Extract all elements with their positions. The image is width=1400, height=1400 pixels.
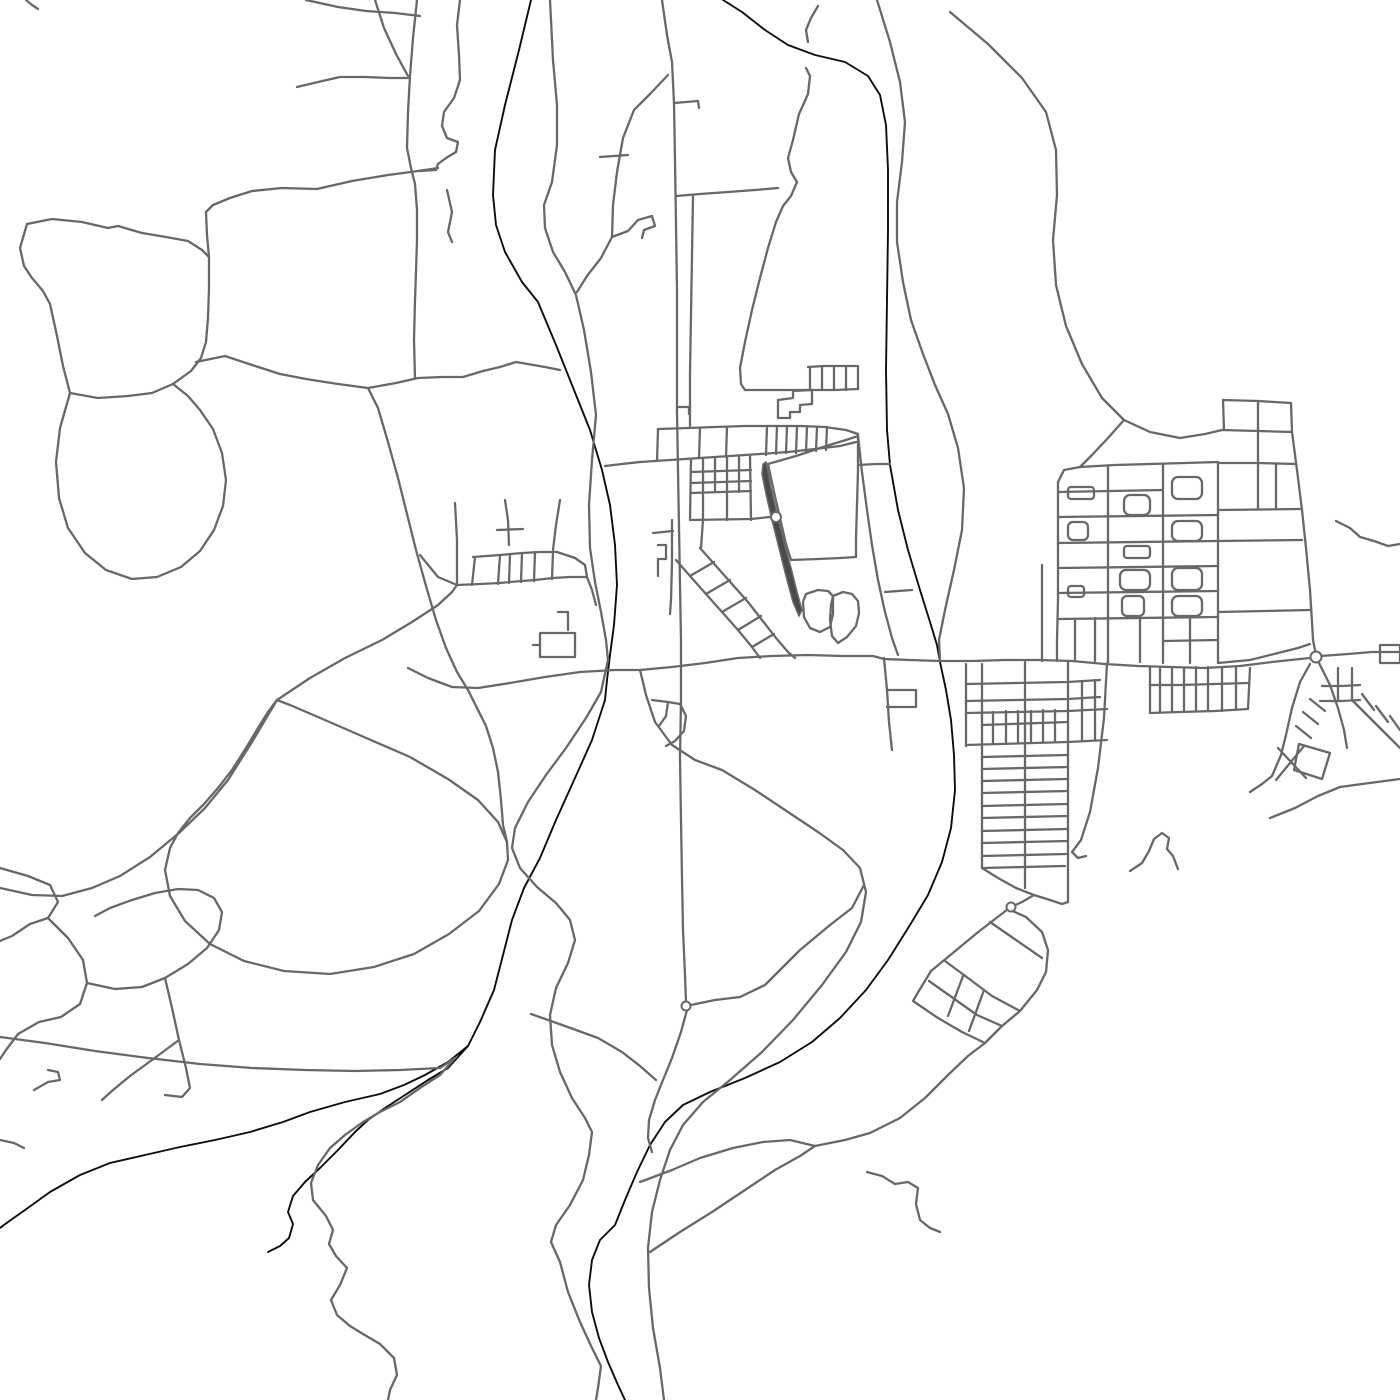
road [497, 529, 523, 530]
roundabout-junction [682, 1002, 691, 1011]
road [1057, 482, 1058, 661]
road [521, 553, 522, 582]
road [552, 552, 553, 579]
road-map-canvas [0, 0, 1400, 1400]
road [1218, 540, 1302, 541]
road [699, 428, 700, 458]
road [858, 464, 890, 465]
roundabout-junction [771, 512, 781, 522]
road [766, 426, 767, 455]
road [508, 520, 509, 545]
map-background [0, 0, 1400, 1400]
roundabout-junction [1007, 903, 1016, 912]
road [806, 426, 807, 452]
road [690, 459, 691, 520]
road [776, 426, 777, 454]
road [657, 429, 658, 461]
road [796, 426, 797, 453]
road [808, 366, 856, 367]
road [534, 552, 535, 581]
roundabout-junction [1311, 652, 1322, 663]
road [726, 427, 727, 457]
road [750, 456, 751, 520]
city-road-map [0, 0, 1400, 1400]
road [1322, 685, 1360, 686]
road [786, 426, 787, 453]
road [816, 427, 817, 451]
road [509, 554, 510, 583]
